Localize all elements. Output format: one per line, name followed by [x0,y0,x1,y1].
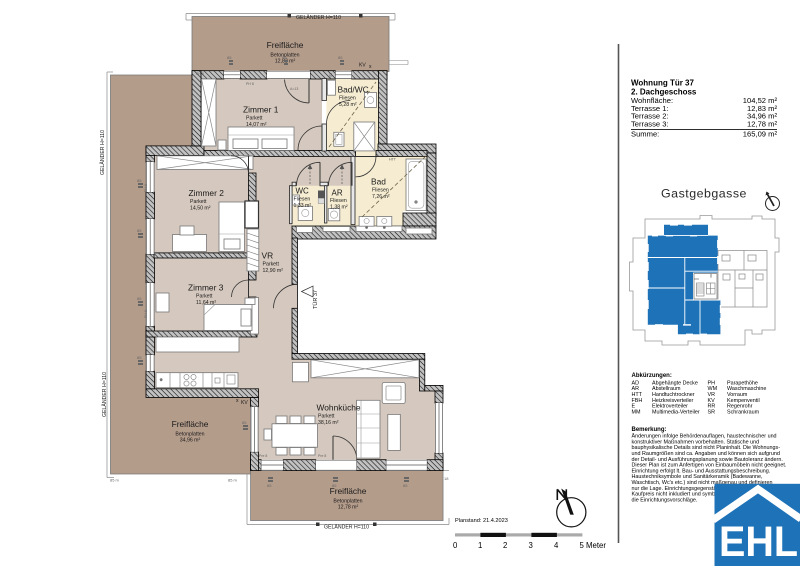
svg-text:Schrankraum: Schrankraum [727,409,760,415]
svg-text:85: 85 [137,355,142,360]
svg-text:12,90 m²: 12,90 m² [263,268,284,274]
svg-text:11,64 m²: 11,64 m² [196,300,216,306]
svg-text:85: 85 [137,178,142,183]
svg-text:MM: MM [632,409,641,415]
svg-text:Bad/WC: Bad/WC [338,85,369,95]
svg-text:Wohnküche: Wohnküche [317,403,361,413]
svg-text:12,78 m²: 12,78 m² [338,505,359,511]
svg-text:Multimedia-Verteiler: Multimedia-Verteiler [652,409,700,415]
svg-text:Zimmer 2: Zimmer 2 [189,188,225,198]
svg-text:GELÄNDER H=110: GELÄNDER H=110 [99,130,106,175]
svg-text:A=13: A=13 [290,87,298,91]
svg-text:Parkett: Parkett [246,116,263,122]
svg-text:PH 8: PH 8 [144,310,148,318]
svg-text:1,33 m²: 1,33 m² [294,203,312,209]
svg-text:12,78 m²: 12,78 m² [747,119,777,128]
svg-text:die Einrichtungsvorschläge.: die Einrichtungsvorschläge. [632,497,698,503]
svg-text:5,28 m²: 5,28 m² [339,102,357,108]
svg-text:85: 85 [282,55,287,60]
svg-text:Fliesen: Fliesen [372,188,389,194]
svg-text:5 Meter: 5 Meter [580,541,607,550]
svg-text:Parkett: Parkett [318,414,335,420]
svg-text:85: 85 [267,483,272,488]
svg-text:85: 85 [403,483,408,488]
svg-text:Summe:: Summe: [631,130,659,139]
svg-text:18: 18 [444,476,449,481]
svg-text:85: 85 [338,55,343,60]
svg-text:HTT: HTT [329,71,333,79]
svg-text:Planstand: 21.4.2023: Planstand: 21.4.2023 [455,518,508,524]
svg-text:AR: AR [332,189,343,198]
svg-text:1,38 m²: 1,38 m² [330,204,348,210]
svg-text:3: 3 [529,541,533,550]
svg-text:Parkett: Parkett [263,262,280,268]
svg-text:85 m: 85 m [110,478,120,483]
svg-text:34,96 m²: 34,96 m² [180,438,201,444]
svg-text:Fliesen: Fliesen [339,96,356,102]
svg-text:Bemerkung:: Bemerkung: [632,427,667,433]
svg-text:Freifläche: Freifläche [267,40,304,50]
svg-text:Gastgebgasse: Gastgebgasse [661,187,747,201]
svg-text:Parkett: Parkett [196,294,213,300]
svg-text:38,16 m²: 38,16 m² [318,420,339,426]
svg-text:85: 85 [137,296,142,301]
svg-text:GELÄNDER H=110: GELÄNDER H=110 [324,524,369,531]
svg-text:WC: WC [296,187,310,196]
svg-text:165,09 m²: 165,09 m² [743,130,778,139]
svg-text:14,50 m²: 14,50 m² [190,206,211,212]
svg-text:VR: VR [262,251,274,261]
svg-text:0: 0 [453,541,458,550]
svg-text:EHL: EHL [719,518,798,566]
svg-text:Bad: Bad [371,177,386,187]
svg-text:14,07 m²: 14,07 m² [246,122,267,128]
svg-text:Wohnung Tür 37: Wohnung Tür 37 [631,79,695,88]
svg-text:Terrasse 3:: Terrasse 3: [631,119,669,128]
svg-text:Freifläche: Freifläche [172,419,209,429]
svg-text:Pre 8: Pre 8 [259,454,267,458]
svg-text:KV: KV [359,63,366,69]
svg-text:SR: SR [708,409,716,415]
svg-text:Fliesen: Fliesen [330,198,347,204]
svg-text:85: 85 [332,483,337,488]
svg-text:KV: KV [241,400,248,406]
svg-text:PH 8: PH 8 [144,184,148,192]
svg-text:TÜR 37: TÜR 37 [312,290,319,309]
svg-text:Fliesen: Fliesen [294,197,311,203]
svg-text:2: 2 [503,541,507,550]
svg-text:Abkürzungen:: Abkürzungen: [632,373,672,379]
svg-text:GELÄNDER H=110: GELÄNDER H=110 [101,372,108,417]
svg-text:1: 1 [478,541,482,550]
svg-text:Zimmer 1: Zimmer 1 [243,105,279,115]
svg-text:4: 4 [554,541,559,550]
svg-text:85: 85 [242,420,247,425]
svg-text:GELÄNDER H=110: GELÄNDER H=110 [296,14,341,21]
svg-text:PH 8: PH 8 [246,82,254,86]
svg-text:Zimmer 3: Zimmer 3 [188,283,224,293]
svg-text:Parkett: Parkett [190,199,207,205]
svg-text:Pre 8: Pre 8 [318,454,326,458]
svg-text:PH 8: PH 8 [196,72,204,76]
svg-text:85 m: 85 m [228,478,238,483]
svg-text:85: 85 [227,55,232,60]
svg-text:HTT: HTT [389,158,397,162]
svg-text:85: 85 [137,228,142,233]
